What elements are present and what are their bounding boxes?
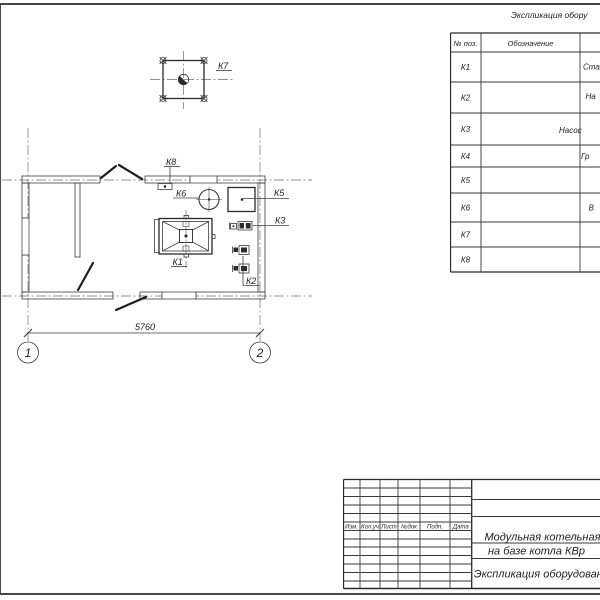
spec-row-pos: К3 xyxy=(461,125,471,134)
spec-row-pos: К1 xyxy=(461,63,470,72)
window-top xyxy=(190,176,217,183)
col-header-list: Лист xyxy=(380,525,396,531)
window-bottom xyxy=(162,292,196,299)
spec-col-designation-header: Обозначение xyxy=(508,39,554,48)
window-left xyxy=(22,218,29,255)
spec-row-pos: К2 xyxy=(461,94,471,103)
spec-col-pos-header: № поз. xyxy=(454,39,478,48)
equipment-k1-boiler: К1 xyxy=(155,210,216,268)
drawing-sheet: К7 xyxy=(0,0,600,600)
equipment-k2-pumps: К2 xyxy=(233,246,260,287)
spec-row-pos: К6 xyxy=(461,204,471,213)
title-block: Изм. Кол.уч Лист №док Подп. Дата Модульн… xyxy=(343,475,600,593)
col-header-koluch: Кол.уч xyxy=(361,525,379,531)
door-leaves xyxy=(78,165,146,310)
equipment-k5: К5 xyxy=(228,188,289,212)
pump-icon xyxy=(233,264,250,273)
partition-door-leaf xyxy=(78,263,93,290)
label-k8: К8 xyxy=(166,157,176,167)
spec-table-title: Экспликация обору xyxy=(511,10,588,20)
axis-mark-1: 1 xyxy=(25,346,32,360)
floor-plan: К7 xyxy=(0,45,345,370)
col-header-izm: Изм. xyxy=(345,525,358,531)
windows xyxy=(22,176,217,299)
building-axes xyxy=(2,128,312,341)
project-title-line1: Модульная котельная xyxy=(485,532,600,544)
axis-mark-2: 2 xyxy=(256,346,264,360)
sheet-name: Экспликация оборудован xyxy=(474,569,600,581)
pump-icon xyxy=(233,246,250,255)
sheet-frame-top xyxy=(0,3,600,5)
bottom-door-leaf xyxy=(116,297,146,310)
equipment-k8: К8 xyxy=(158,157,180,190)
label-k3: К3 xyxy=(275,216,285,226)
double-door-leaf-left xyxy=(101,166,116,178)
flue-pipe-icon xyxy=(176,74,189,87)
spec-row-pos: К5 xyxy=(461,176,471,185)
label-k7: К7 xyxy=(218,61,229,71)
label-k6: К6 xyxy=(176,189,186,199)
col-header-ndok: №док xyxy=(401,524,418,531)
dimension-5760: 5760 xyxy=(24,322,264,337)
spec-name-fragments: Стал На Насос Гр В xyxy=(559,63,600,213)
col-header-data: Дата xyxy=(452,525,469,531)
label-k5: К5 xyxy=(274,188,285,198)
equipment-k3-pump: К3 xyxy=(230,216,290,231)
spec-rows: К1 К2 К3 К4 К5 К6 К7 К8 xyxy=(461,63,471,265)
spec-row-pos: К4 xyxy=(461,152,471,161)
spec-row-pos: К8 xyxy=(461,256,471,265)
pump-icon xyxy=(230,222,253,231)
equipment-spec-table: Экспликация обору № поз. Обозначение К1 … xyxy=(450,10,600,275)
flue-detail-k7: К7 xyxy=(150,51,233,109)
col-header-podp: Подп. xyxy=(427,525,443,531)
label-k1: К1 xyxy=(173,257,183,267)
spec-table-grid xyxy=(451,33,600,272)
spec-row-name: Гр xyxy=(581,152,590,161)
double-door-leaf-right xyxy=(119,165,142,179)
spec-row-name: Насос xyxy=(559,126,582,135)
spec-row-name: В xyxy=(589,204,595,213)
spec-row-name: На xyxy=(586,92,597,101)
label-k2: К2 xyxy=(246,276,256,286)
project-title-line2: на базе котла КВр xyxy=(488,546,585,558)
partition-wall xyxy=(75,183,80,257)
axis-bubbles: 1 2 xyxy=(18,342,271,363)
spec-row-pos: К7 xyxy=(461,231,471,240)
equipment-k6-fan: К6 xyxy=(173,187,222,212)
spec-row-name: Стал xyxy=(583,63,600,72)
dimension-value: 5760 xyxy=(135,322,155,332)
title-block-headers: Изм. Кол.уч Лист №док Подп. Дата xyxy=(345,524,469,531)
